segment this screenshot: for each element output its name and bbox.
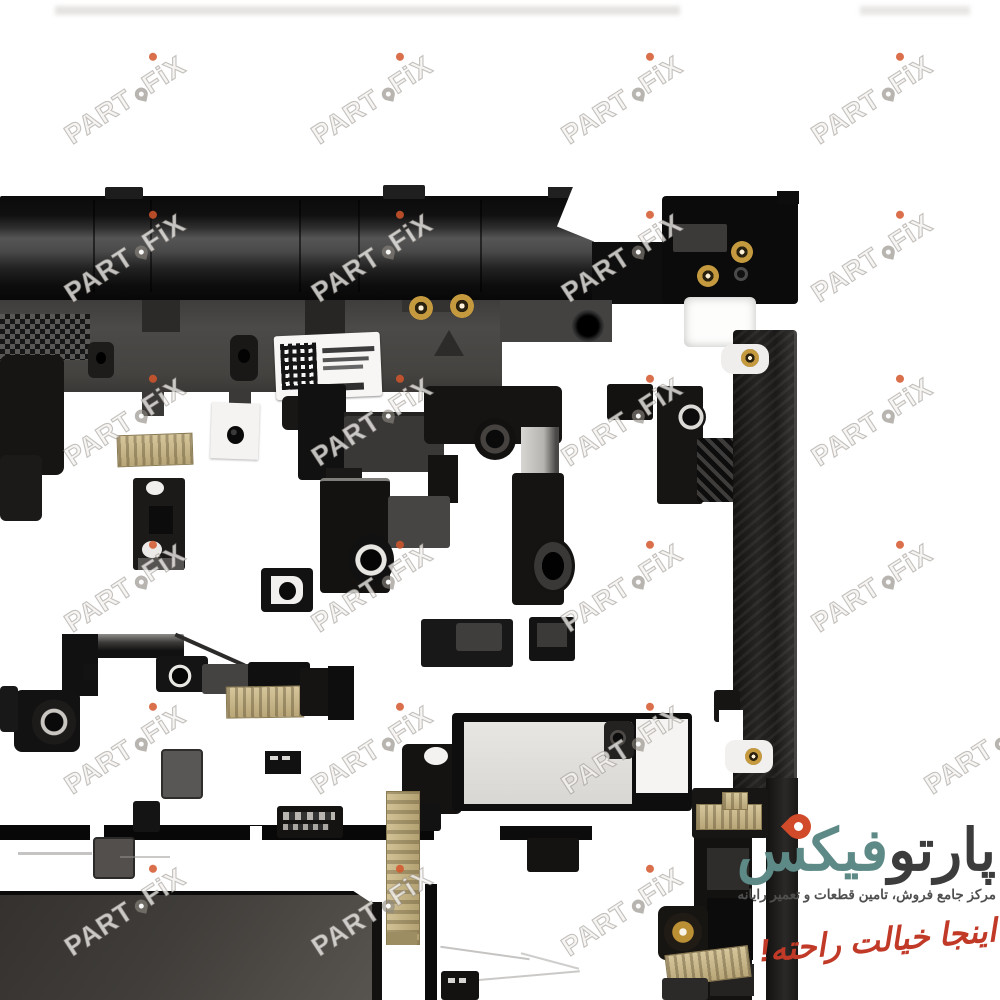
- warning-triangle-emboss: [434, 330, 464, 356]
- watermark-text: PART: [59, 572, 139, 638]
- tan-ribbon: [226, 685, 305, 718]
- case-ridge: [0, 825, 434, 840]
- connector-pins: [283, 812, 335, 820]
- brand-text-dark: پارتو: [888, 818, 996, 883]
- connector-pin: [448, 978, 455, 983]
- part-shape: [0, 455, 42, 521]
- photo-artifact: [55, 6, 680, 15]
- pin-icon: [993, 737, 1000, 752]
- connector-pin: [270, 756, 278, 760]
- partofix-logo: پارتوفیکس مرکز جامع فروش، تامین قطعات و …: [688, 818, 996, 990]
- bracket-hole: [146, 481, 164, 495]
- rail-tab: [105, 187, 143, 199]
- part-shape: [328, 666, 354, 720]
- label-datamatrix: [280, 343, 318, 391]
- label-text-line: [322, 346, 374, 353]
- part-shape: [93, 837, 135, 879]
- screw-head: [227, 426, 244, 444]
- screw-boss-ring: [32, 698, 76, 746]
- watermark-text: PART: [806, 406, 886, 472]
- screw-boss-hole: [238, 349, 250, 363]
- watermark-text: PART: [306, 734, 386, 800]
- connector-bracket: [265, 751, 301, 774]
- watermark-text: PART: [806, 572, 886, 638]
- watermark-text: PART: [556, 406, 636, 472]
- photo-scratch: [120, 856, 170, 858]
- screw-ring: [734, 267, 748, 281]
- part-shape: [133, 801, 160, 832]
- brand-wordmark: پارتوفیکس: [688, 818, 996, 885]
- logo-tagline: مرکز جامع فروش، تامین قطعات و تعمیر رایا…: [688, 887, 996, 903]
- rail-seam: [480, 200, 482, 292]
- label-text-line: [323, 356, 369, 362]
- watermark-text: PART: [806, 84, 886, 150]
- watermark: PARTFiX: [790, 37, 954, 163]
- bracket-window: [149, 506, 173, 534]
- screw-boss-ring: [166, 662, 194, 690]
- watermark-text: PART: [306, 84, 386, 150]
- bracket-hole: [424, 747, 448, 765]
- watermark-text: PART: [806, 242, 886, 308]
- screw-standoff-gold: [450, 294, 474, 318]
- brand-text-teal: فیکس: [737, 818, 888, 883]
- clip-pin: [279, 582, 296, 600]
- screw-standoff-gold: [409, 296, 433, 320]
- connector-pin: [282, 756, 290, 760]
- screw-boss-ring: [531, 538, 575, 594]
- screw-boss-hole: [96, 352, 106, 364]
- watermark-text: PART: [556, 896, 636, 962]
- tan-ribbon: [722, 792, 748, 810]
- watermark: PARTFiX: [540, 37, 704, 163]
- part-shape: [84, 664, 98, 680]
- screw-boss-ring: [474, 418, 516, 460]
- part-shape: [0, 686, 18, 732]
- watermark: PARTFiX: [903, 687, 1000, 813]
- screw-standoff-gold: [731, 241, 753, 263]
- part-shape: [92, 634, 184, 658]
- part-shape: [527, 838, 579, 872]
- watermark: PARTFiX: [290, 37, 454, 163]
- part-shape: [456, 623, 502, 651]
- connector-pin: [459, 978, 466, 983]
- watermark: PARTFiX: [43, 37, 207, 163]
- photo-artifact: [860, 6, 970, 15]
- clip-bracket: [261, 568, 313, 612]
- label-text-line: [323, 364, 363, 370]
- tan-ribbon-endcap: [387, 932, 417, 945]
- photo-scratch: [18, 852, 92, 855]
- latch-pin-gold: [745, 748, 762, 765]
- screw-standoff-gold: [697, 265, 719, 287]
- product-photo: PARTFiX PARTFiX PARTFiX PARTFiX PARTFiX …: [0, 0, 1000, 1000]
- watermark-text: PART: [556, 84, 636, 150]
- watermark-text: PART: [59, 84, 139, 150]
- corner-block-lip: [777, 191, 799, 204]
- part-shape: [161, 749, 203, 799]
- rail-tab: [383, 185, 425, 199]
- molded-circle: [572, 310, 604, 342]
- watermark: PARTFiX: [790, 525, 954, 651]
- rail-gap: [719, 710, 743, 742]
- rail-seam: [299, 200, 301, 292]
- watermark-text: PART: [919, 734, 999, 800]
- case-edge: [425, 884, 437, 1000]
- connector-socket: [441, 971, 479, 1000]
- watermark: PARTFiX: [790, 359, 954, 485]
- watermark-text: PART: [306, 572, 386, 638]
- watermark: PARTFiX: [43, 525, 207, 651]
- latch-pin-gold: [741, 349, 759, 367]
- ridge-gap: [250, 826, 262, 840]
- watermark: PARTFiX: [790, 195, 954, 321]
- photo-scratch: [440, 946, 529, 961]
- deck-slot: [142, 300, 180, 332]
- logo-slogan: اینجا خیالت راحته!: [692, 911, 998, 975]
- connector-pins: [283, 824, 329, 830]
- speaker-grid: [0, 314, 90, 360]
